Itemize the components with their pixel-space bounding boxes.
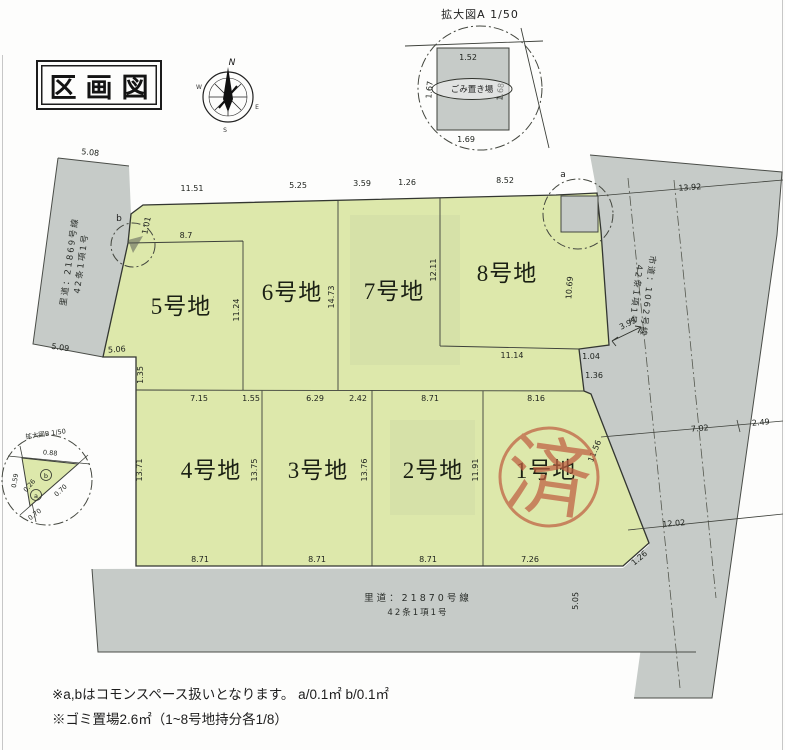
dim-lot5-top: 8.7: [180, 231, 193, 240]
dim-lot2-right: 11.91: [471, 459, 480, 482]
lot4-label: 4号地: [181, 458, 242, 483]
dim-lot1-bottom: 7.26: [521, 555, 539, 564]
note-garbage: ※ゴミ置場2.6㎡（1~8号地持分各1/8）: [52, 707, 389, 732]
detail-a: 拡大図A 1/50 1.52 1.69 1.67 1.68 ごみ置き場: [405, 7, 549, 150]
dim-lot3-bottom: 8.71: [308, 555, 326, 564]
dim-lot6-right: 14.73: [327, 286, 336, 309]
dim-lot8-top: 8.52: [496, 176, 514, 185]
lot7-label: 7号地: [364, 279, 425, 304]
detail-a-title: 拡大図A 1/50: [441, 7, 519, 21]
dim-lot5-bottom: 5.06: [108, 344, 126, 354]
dim-lot4-bottom: 8.71: [191, 555, 209, 564]
marker-b-label: b: [116, 214, 122, 224]
dim-lot4-right: 13.75: [250, 459, 259, 482]
detail-a-garbage-label: ごみ置き場: [451, 84, 494, 95]
dim-road-right-top: 13.92: [678, 182, 701, 193]
dim-lot4-left: 13.71: [135, 459, 144, 482]
lot3-label: 3号地: [288, 458, 349, 483]
detail-b-dim-top: 0.88: [43, 448, 58, 457]
dim-road-left-bottom: 5.09: [51, 342, 70, 353]
dim-lot8-right: 10.69: [564, 276, 575, 299]
sold-stamp-text: 済: [499, 425, 598, 532]
lot8-label: 8号地: [477, 261, 538, 286]
detail-b-dim-hyp: 0.70: [53, 483, 69, 499]
dim-lot5-right: 11.24: [232, 299, 241, 322]
compass-needle-icon: [223, 67, 233, 112]
detail-a-dim-top: 1.52: [459, 53, 477, 62]
dim-road-right-b: 2.49: [752, 417, 771, 428]
compass-rose: N W E S: [196, 58, 259, 134]
road-bottom-name: 里道：21870号線: [364, 592, 472, 604]
road-bottom-article: 42条1項1号: [387, 607, 448, 618]
detail-b-marker-b: b: [44, 472, 48, 480]
dim-lot5-step: 1.35: [136, 366, 145, 384]
detail-a-dim-bottom: 1.69: [457, 135, 475, 144]
dim-lot4-top-a: 7.15: [190, 394, 208, 403]
compass-s: S: [223, 127, 227, 134]
detail-b: 拡大図B 1/50 0.88 0.70 0.70 0.59 0.26 a b: [2, 426, 92, 525]
dim-lot8-bottom: 11.14: [501, 351, 524, 360]
dim-lot2-bottom: 8.71: [419, 555, 437, 564]
dim-road-left-top: 5.08: [81, 147, 100, 158]
detail-b-dim-left: 0.59: [10, 473, 20, 489]
lot5-label: 5号地: [151, 294, 212, 319]
dim-lot3-top-a: 6.29: [306, 394, 324, 403]
dim-lot7-top-b: 1.26: [398, 178, 416, 187]
lot6-label: 6号地: [262, 280, 323, 305]
plot-plan-canvas: 区画図 5号地 6号地 7号地 8号地 4号地 3号地 2号地 1号地 11: [0, 0, 785, 750]
dim-lot8-edge-b: 1.36: [585, 371, 603, 380]
compass-n: N: [229, 58, 236, 68]
dim-lot3-top-b: 2.42: [349, 394, 367, 403]
garbage-area-square: [561, 196, 598, 232]
detail-b-marker-a: a: [34, 492, 38, 500]
plot-map: 5号地 6号地 7号地 8号地 4号地 3号地 2号地 1号地 11.51 5.…: [0, 0, 785, 750]
dim-road-bottom-height: 5.05: [571, 592, 581, 610]
footnotes: ※a,bはコモンスペース扱いとなります。 a/0.1㎡ b/0.1㎡ ※ゴミ置場…: [52, 682, 389, 732]
dim-lot6-top-b: 5.25: [289, 181, 307, 190]
dim-lot2-top: 8.71: [421, 394, 439, 403]
dim-road-right-a: 7.02: [691, 423, 710, 434]
detail-b-dim-bottom: 0.70: [27, 507, 43, 522]
dim-lot7-top-a: 3.59: [353, 179, 371, 188]
dim-lot7-right: 12.11: [429, 259, 438, 282]
dim-lot4-top-b: 1.55: [242, 394, 260, 403]
compass-w: W: [196, 84, 202, 91]
marker-a-label: a: [560, 170, 566, 180]
dim-lot8-edge-a: 1.04: [582, 352, 600, 361]
compass-e: E: [255, 104, 259, 111]
dim-lot3-right: 13.76: [360, 459, 369, 482]
detail-b-title: 拡大図B 1/50: [25, 426, 66, 441]
dim-lot6-top-a: 11.51: [181, 184, 204, 193]
note-common-space: ※a,bはコモンスペース扱いとなります。 a/0.1㎡ b/0.1㎡: [52, 682, 389, 707]
lot2-label: 2号地: [403, 458, 464, 483]
dim-lot1-top: 8.16: [527, 394, 545, 403]
